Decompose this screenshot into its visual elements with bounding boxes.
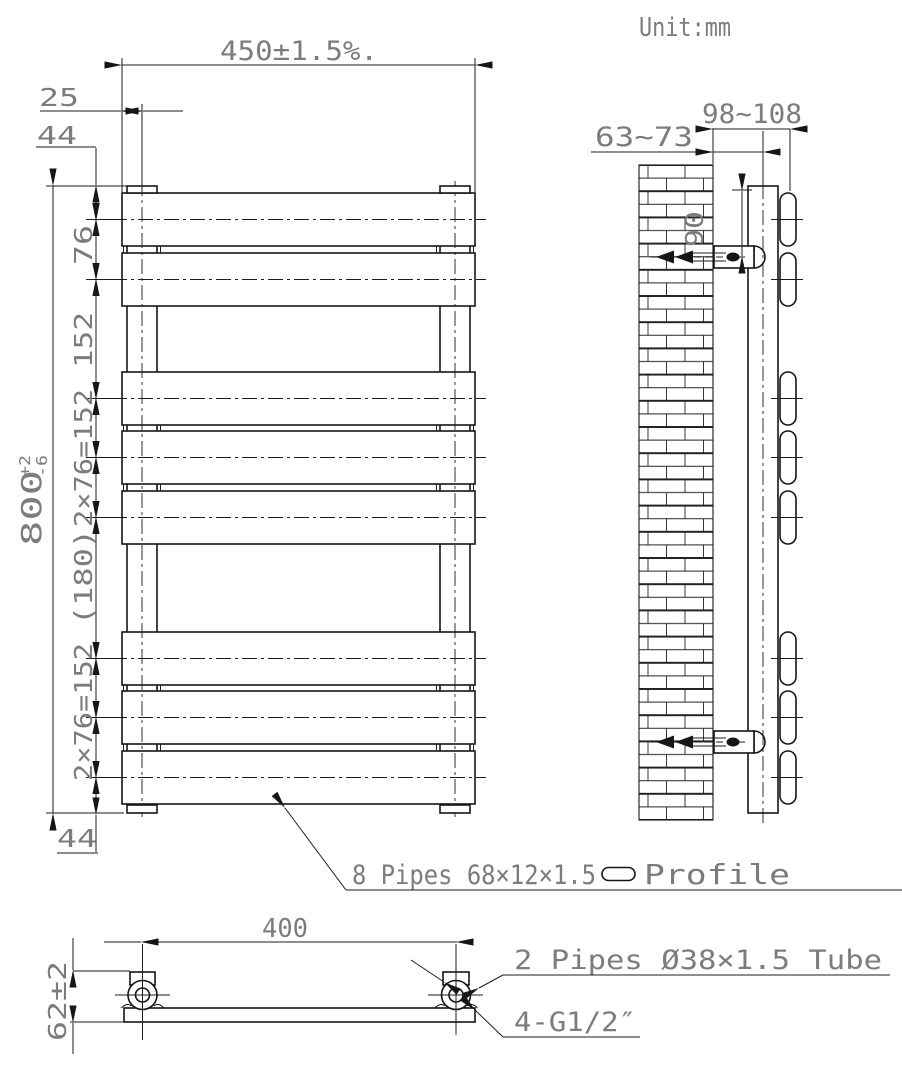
brick-wall (639, 165, 713, 820)
panel-edge-bar (124, 1008, 475, 1022)
dim-height-label: 800 (15, 470, 48, 546)
callout-profile-label: Profile (644, 858, 790, 891)
dim-connection-spacing-label: 400 (262, 914, 308, 944)
pitch-dim-label: 76 (69, 225, 98, 265)
bottom-view: 400 62±2 (43, 914, 483, 1054)
callout-panel-pipes: 8 Pipes 68×12×1.5 (352, 860, 596, 891)
callout-thread-spec: 4-G1/2″ (514, 1007, 636, 1038)
dim-height-lower-tol: -6 (33, 455, 51, 477)
leader-arrow (285, 808, 346, 890)
screw-head (727, 738, 740, 747)
leader-arrow (411, 960, 444, 982)
leader-arrow (475, 1010, 503, 1037)
dim-width-label: 450±1.5%. (220, 36, 378, 67)
dim-height-upper-tol: +2 (16, 455, 34, 477)
profile-symbol (602, 868, 635, 881)
front-view (112, 181, 486, 817)
pitch-dim-label: (180) (69, 529, 98, 625)
tube-bottom-stub (127, 805, 157, 813)
screw-head (727, 253, 740, 262)
leader-arrow (479, 975, 503, 988)
unit-note: Unit:mm (639, 13, 731, 43)
dim-depth-label: 62±2 (43, 961, 72, 1041)
technical-drawing-canvas: 450±1.5%. 25 44 800 +2 -6 76 152 2×76=15… (0, 0, 902, 1069)
dim-top-pitch-label: 44 (37, 121, 77, 150)
dim-tube-inset-label: 25 (39, 83, 79, 112)
dim-bottom-pitch-label: 44 (57, 824, 97, 853)
callout-round-pipes: 2 Pipes Ø38×1.5 Tube (514, 945, 882, 976)
radiator-dimension-drawing: 450±1.5%. 25 44 800 +2 -6 76 152 2×76=15… (0, 0, 902, 1069)
side-view: 98~108 63~73 90 (591, 99, 803, 824)
panel-stack (112, 181, 486, 817)
pitch-dim-label: 2×76=152 (69, 643, 98, 781)
dim-wall-to-face-label: 98~108 (702, 99, 802, 130)
tube-bottom-stub (440, 805, 470, 813)
dim-bracket-drop-label: 90 (680, 211, 709, 247)
pitch-dim-label: 2×76=152 (69, 389, 98, 527)
pitch-dim-label: 152 (69, 312, 98, 368)
dim-wall-to-center-label: 63~73 (595, 122, 693, 153)
tube-top-stub (440, 186, 470, 193)
